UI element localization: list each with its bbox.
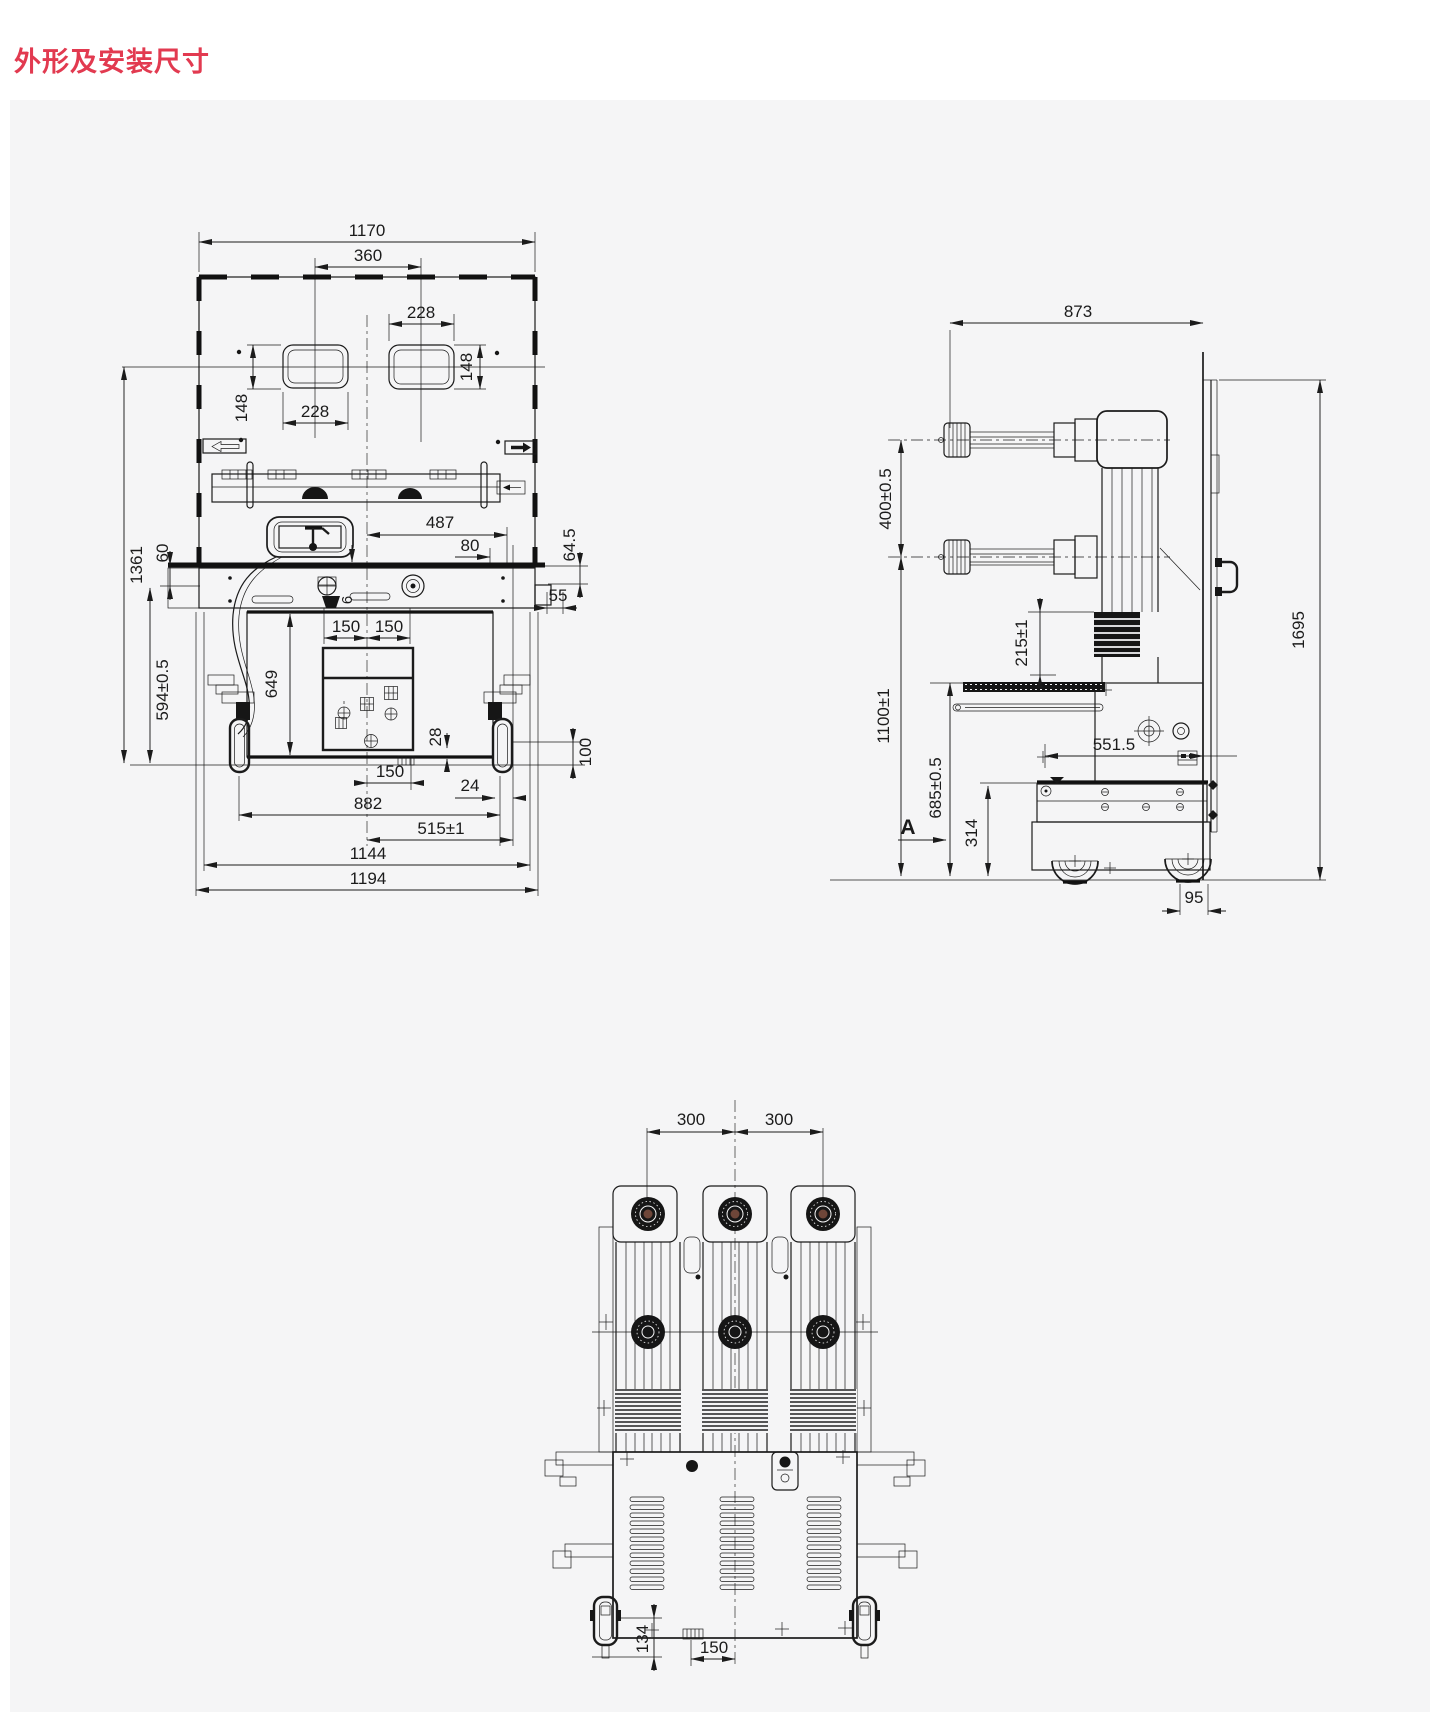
dim-rear-pole-pitch-right: 300 xyxy=(765,1110,793,1129)
dim-side-depth: 873 xyxy=(1064,302,1092,321)
louver-vents xyxy=(630,1497,841,1590)
dim-front-beam-drop: 64.5 xyxy=(560,528,579,561)
dim-front-pin-offset: 6 xyxy=(339,596,356,604)
pole-column xyxy=(1094,468,1200,683)
dim-side-pole-section: 215±1 xyxy=(1012,619,1031,666)
dim-front-frame-width: 1144 xyxy=(350,844,387,863)
front-dimensions: 1170 360 228 148 228 148 487 80 64.5 55 … xyxy=(124,221,595,890)
mid-contacts xyxy=(631,1315,840,1349)
dim-front-notch-height: 28 xyxy=(426,728,445,747)
dim-front-bolt-left: 150 xyxy=(332,617,360,636)
dim-side-mech-height: 685±0.5 xyxy=(926,757,945,818)
spout-opening-left xyxy=(283,345,348,388)
pole-columns xyxy=(597,1186,871,1452)
drawing-canvas: 1170 360 228 148 228 148 487 80 64.5 55 … xyxy=(10,100,1430,1712)
dim-front-overall-width: 1170 xyxy=(349,221,386,240)
rear-view-drawing: 300 300 134 150 xyxy=(468,1020,902,1682)
section-view-label: A xyxy=(900,816,915,839)
dim-rear-pole-pitch-left: 300 xyxy=(677,1110,705,1129)
handle-hook xyxy=(1215,558,1237,596)
pole-assembly xyxy=(939,411,1204,782)
page-title: 外形及安装尺寸 xyxy=(14,40,210,79)
handle-knob xyxy=(309,543,317,551)
rear-foot-right xyxy=(849,1597,880,1658)
rack-bar xyxy=(953,682,1105,711)
dim-front-body-height: 649 xyxy=(262,670,281,698)
dim-front-lower-height: 594±0.5 xyxy=(153,659,172,720)
dim-front-base-slot: 150 xyxy=(376,762,404,781)
dim-side-wheel-inset: 95 xyxy=(1185,888,1204,907)
front-panel xyxy=(199,277,536,737)
dim-front-side-tab: 55 xyxy=(549,586,568,605)
rear-foot-left xyxy=(590,1597,621,1658)
pole-head xyxy=(1097,411,1167,468)
trolley-wheel-right xyxy=(1165,853,1211,882)
dim-front-bolt-right: 150 xyxy=(375,617,403,636)
side-view-drawing: 873 400±0.5 1100±1 685±0.5 215±1 551.5 3… xyxy=(778,300,1340,922)
dim-side-base-height: 314 xyxy=(962,819,981,847)
dim-rear-base-slot: 150 xyxy=(700,1638,728,1657)
dim-front-overall-base-width: 1194 xyxy=(350,869,387,888)
chassis-beam xyxy=(168,565,551,608)
dim-front-shutter-offset: 80 xyxy=(461,536,480,555)
side-dimensions: 873 400±0.5 1100±1 685±0.5 215±1 551.5 3… xyxy=(874,302,1320,911)
dim-front-overall-height: 1361 xyxy=(127,546,146,584)
port-symbol xyxy=(1173,723,1189,739)
mechanism-panel xyxy=(323,648,413,750)
dim-front-lower-spout-width: 228 xyxy=(301,402,329,421)
interlock-bezel xyxy=(267,517,353,557)
dim-front-beam-step: 60 xyxy=(153,544,172,563)
dim-side-arm-height: 1100±1 xyxy=(874,688,893,743)
dim-side-arm-spacing: 400±0.5 xyxy=(876,468,895,529)
dim-front-guide-span: 515±1 xyxy=(417,819,464,838)
dim-side-overall-height: 1695 xyxy=(1289,611,1308,649)
dim-front-wheel-offset: 24 xyxy=(461,776,480,795)
dim-front-upper-spout-width: 228 xyxy=(407,303,435,322)
terminal-row xyxy=(212,462,525,508)
direction-arrow-plate-right xyxy=(505,441,536,454)
interlock-latch xyxy=(318,577,340,608)
dim-front-wheel-zone: 100 xyxy=(576,738,595,766)
dim-front-lower-spout-height: 148 xyxy=(232,394,251,422)
dim-side-rail-depth: 551.5 xyxy=(1093,735,1136,754)
trolley xyxy=(1032,684,1211,884)
dim-rear-foot-height: 134 xyxy=(633,1625,652,1653)
front-view-drawing: 1170 360 228 148 228 148 487 80 64.5 55 … xyxy=(118,210,592,902)
rear-insulator-fins xyxy=(614,1389,857,1433)
dim-front-upper-spout-height: 148 xyxy=(457,353,476,381)
lower-body xyxy=(208,612,530,772)
upper-contacts xyxy=(631,1197,840,1231)
mounting-plate xyxy=(1203,352,1237,880)
lifting-clamp xyxy=(772,1452,798,1490)
dim-front-spout-spacing: 360 xyxy=(354,246,382,265)
dim-front-wheel-span: 882 xyxy=(354,794,382,813)
dim-front-rail-length: 487 xyxy=(426,513,454,532)
